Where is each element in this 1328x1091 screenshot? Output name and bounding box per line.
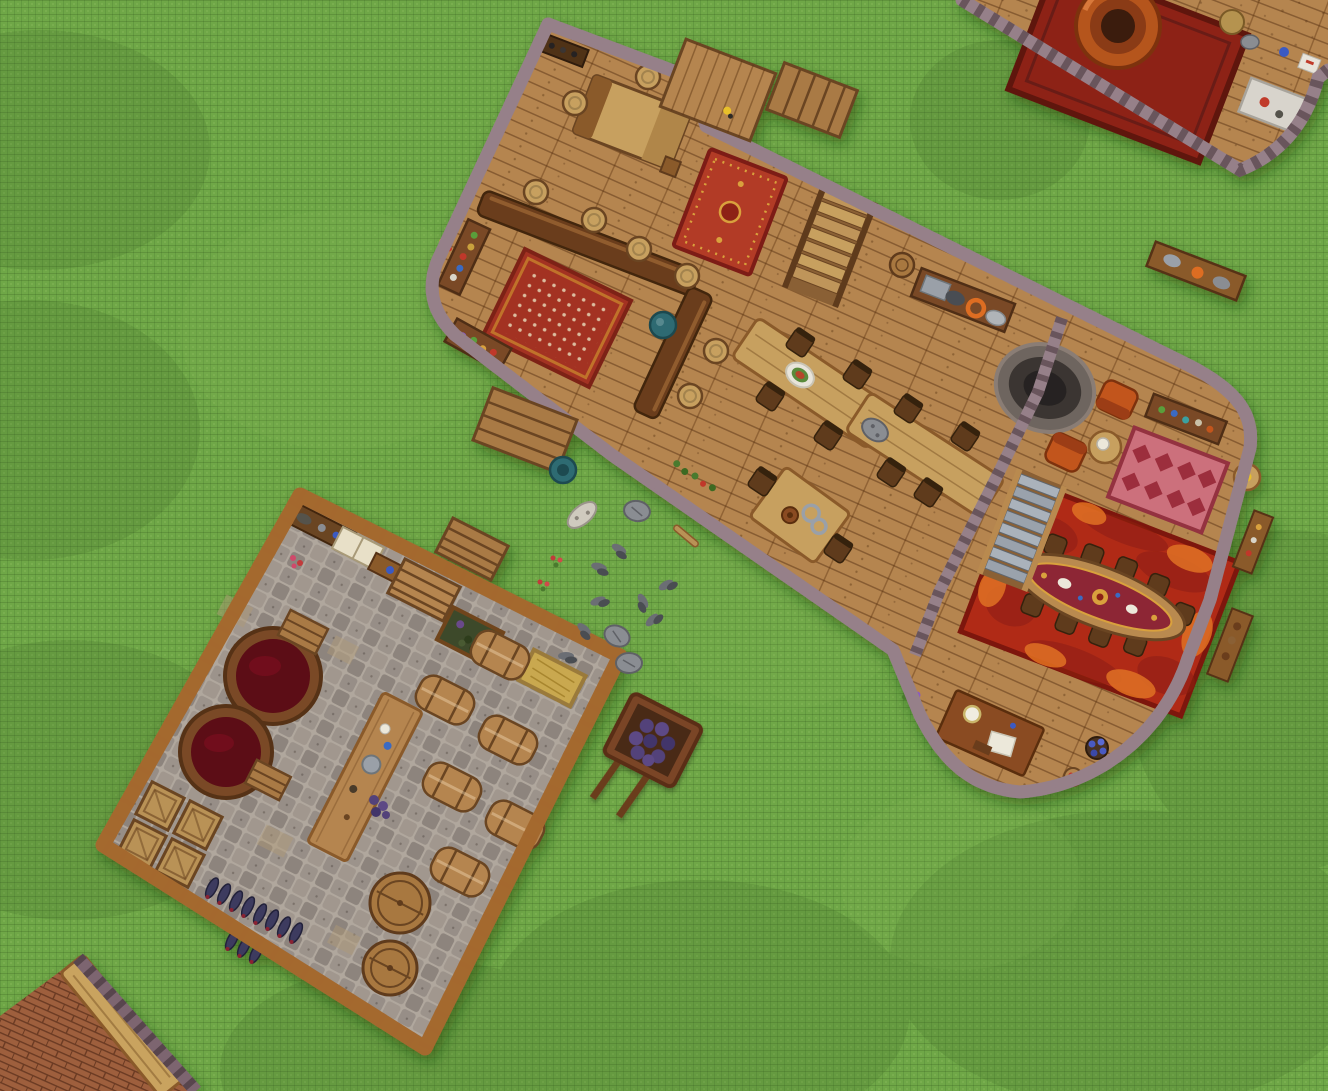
bar-stool — [524, 180, 548, 204]
bar-stool — [582, 208, 606, 232]
forge-pot — [1076, 0, 1160, 68]
bar-stool — [675, 264, 699, 288]
barrel — [363, 941, 417, 995]
barrel — [370, 873, 430, 933]
blue-flower-pot — [1086, 737, 1108, 759]
hall-barrel — [890, 253, 914, 277]
debris-rock — [616, 653, 642, 673]
bar-stool — [678, 384, 702, 408]
bar-stool — [704, 339, 728, 363]
battlemap-canvas — [0, 0, 1328, 1091]
battlemap-svg — [0, 0, 1328, 1091]
bar-stool — [563, 91, 587, 115]
round-side-table — [1089, 431, 1121, 463]
bar-stool — [627, 237, 651, 261]
debris-pot — [550, 457, 576, 483]
teal-stool — [650, 312, 676, 338]
